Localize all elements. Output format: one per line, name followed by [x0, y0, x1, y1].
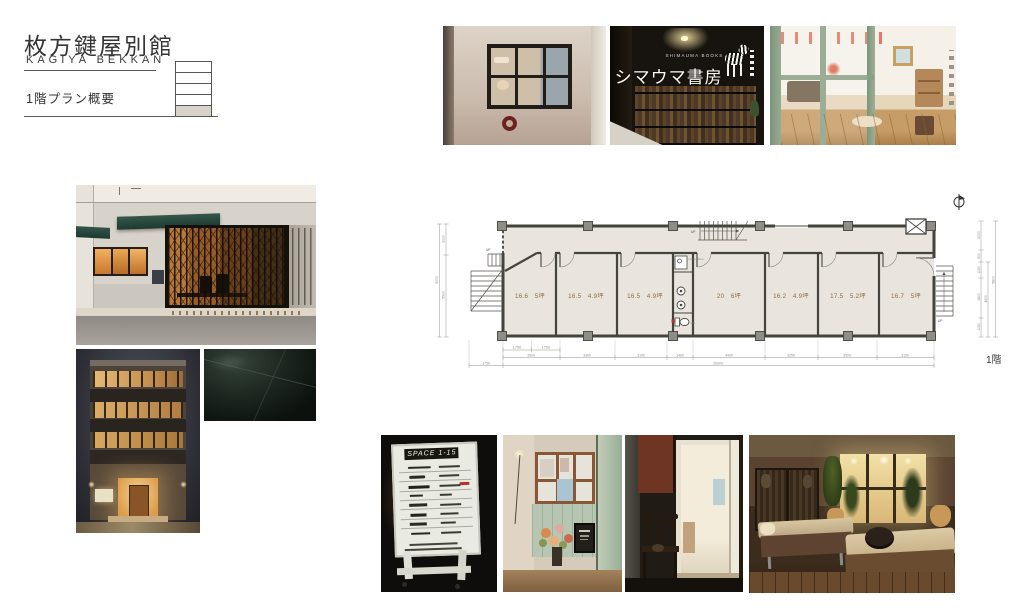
svg-text:1750: 1750: [513, 346, 521, 350]
right-door-section: [287, 225, 316, 308]
green-awning-left: [76, 226, 110, 239]
wall-plaque: [152, 270, 164, 284]
flower-bouquet: [539, 524, 579, 568]
small-framed-window: [893, 46, 913, 66]
svg-text:3250: 3250: [787, 353, 795, 357]
red-marker: [672, 320, 675, 323]
svg-text:3150: 3150: [901, 353, 909, 357]
floor-sheen: [208, 353, 248, 372]
svg-text:500: 500: [977, 253, 981, 259]
black-frame-window: [487, 44, 572, 109]
mini-kitchen-label: mini kitchen: [689, 257, 704, 261]
photo-facade-dusk: [76, 185, 316, 345]
wc-label: WC: [691, 321, 696, 325]
photo-interior-window: [443, 26, 606, 145]
svg-text:1150: 1150: [977, 266, 981, 273]
floor-indicator-diagram: [175, 61, 212, 117]
photo-gallery-interior: [770, 26, 956, 145]
lit-window-band: [93, 247, 148, 276]
photo-dark-floor: [204, 349, 316, 421]
tenant-rows: [398, 461, 473, 538]
fallen-leaves: [172, 311, 304, 315]
photo-hall-chair: [625, 435, 743, 592]
wood-framed-window: [535, 452, 595, 504]
svg-text:3300: 3300: [583, 353, 591, 357]
floor-cell-3: [176, 84, 211, 95]
window-band-4f: [93, 371, 182, 387]
window-band-2f: [93, 432, 182, 448]
svg-text:1150: 1150: [977, 323, 981, 330]
green-door: [596, 435, 622, 592]
plan-floor-fill: [503, 225, 934, 337]
page-subtitle: KAGIYA BEKKAN: [26, 54, 165, 66]
floor-cell-1-highlighted: [176, 106, 211, 116]
hanging-bag: [761, 474, 771, 488]
stair-right-exterior: [936, 266, 953, 316]
svg-text:4500: 4500: [984, 295, 988, 303]
zebra-tail-marks: [750, 50, 754, 76]
bookstore-sign-jp: シマウマ書房: [615, 63, 723, 88]
white-door-sliver: [591, 26, 606, 145]
floor-label: 1階: [986, 354, 1002, 366]
open-door-leaf: [729, 440, 740, 581]
room-label-7: 16.7 5坪: [891, 292, 921, 300]
wood-floor: [503, 570, 622, 592]
inner-window: [713, 479, 726, 504]
window-band-3f: [93, 402, 182, 418]
floor-planks: [781, 114, 956, 145]
red-tag: [459, 482, 469, 486]
lamp: [681, 36, 688, 41]
bookstore-sign-en: SHIMAUMA BOOKS: [665, 53, 723, 58]
face-cradle: [865, 527, 893, 550]
floor-cell-5: [176, 62, 211, 73]
room-label-1: 16.6 5坪: [515, 292, 545, 300]
svg-text:5800: 5800: [991, 276, 995, 284]
sign-header: SPACE 1-15: [404, 447, 458, 460]
wood-plank-floor: [749, 572, 955, 593]
room-label-5: 16.2 4.9坪: [773, 292, 809, 300]
room-label-3: 16.5 4.9坪: [627, 292, 663, 300]
green-frame-left: [770, 26, 781, 145]
svg-text:26000: 26000: [713, 361, 723, 365]
asphalt-road: [76, 316, 316, 345]
dims-bottom-labels: 1750 1750 3500 3300 3100 1480 4400 3250 …: [482, 346, 909, 366]
floor-cell-4: [176, 73, 211, 84]
svg-text:4400: 4400: [725, 353, 733, 357]
stair-left-exterior: [471, 254, 503, 311]
bookshelves: [635, 86, 757, 146]
photo-facade-night: [76, 349, 200, 533]
presentation-page: 枚方鍵屋別館 KAGIYA BEKKAN 1階プラン概要 SHIMAUMA BO…: [0, 0, 1032, 611]
room-labels: 16.6 5坪 16.5 4.9坪 16.5 4.9坪 20 6坪 16.2 4…: [515, 292, 921, 300]
dims-right-labels: 2000 500 1150 1800 1150 4500 5800: [977, 231, 996, 331]
bright-doorway: [676, 440, 740, 581]
red-brown-door: [638, 435, 676, 493]
svg-text:3500: 3500: [843, 353, 851, 357]
sign-footnote-line: [404, 547, 461, 551]
lit-entrance: [118, 478, 158, 518]
room-label-2: 16.5 4.9坪: [568, 292, 604, 300]
wood-shelf-unit: [915, 69, 943, 107]
caster-wheel-2: [455, 584, 460, 589]
dims-left-labels: 3000 5900 9000: [435, 235, 445, 299]
bulb-glow: [850, 457, 858, 465]
caster-wheel: [402, 582, 407, 587]
shelf-highlight: [494, 57, 509, 64]
zebra-logo: [724, 45, 750, 79]
sign-board: SPACE 1-15: [391, 441, 481, 557]
basket-right: [930, 505, 951, 527]
svg-text:3000: 3000: [441, 235, 445, 243]
title-rule: [24, 70, 156, 71]
floor-plan-drawing: UP UP UP mini kitchen WC: [435, 190, 1013, 390]
tenant-row: [401, 527, 473, 538]
chair-basket: [652, 544, 664, 552]
accordion-lattice: [168, 228, 284, 305]
sign-leg-right: [457, 549, 467, 579]
massage-bed-left: [758, 518, 855, 570]
up-label-right: UP: [938, 319, 942, 323]
wall-cards-column: [949, 50, 955, 105]
night-ground: [76, 522, 200, 533]
north-arrow-icon: [954, 194, 965, 210]
plant-silhouette: [843, 475, 860, 517]
svg-text:3500: 3500: [527, 353, 535, 357]
photo-entry-flowers: [503, 435, 622, 592]
plan-overview-label: 1階プラン概要: [26, 88, 115, 107]
photo-bookstore: SHIMAUMA BOOKS シマウマ書房: [610, 26, 764, 145]
side-wall: [76, 185, 94, 308]
svg-text:1800: 1800: [977, 293, 981, 301]
wooden-chair: [639, 514, 681, 580]
lit-sign: [95, 489, 114, 502]
svg-text:3100: 3100: [637, 353, 645, 357]
svg-text:1750: 1750: [542, 346, 550, 350]
flower-vase: [552, 547, 562, 565]
backlit-window: [840, 454, 927, 524]
up-label-left: UP: [486, 248, 490, 252]
room-label-4: 20 6坪: [717, 292, 741, 300]
photo-massage-room: [749, 435, 955, 593]
inner-stool: [683, 522, 694, 553]
svg-text:9000: 9000: [435, 276, 439, 284]
photo-signboard: SPACE 1-15: [381, 435, 497, 592]
up-label-top: UP: [691, 230, 695, 234]
svg-text:1750: 1750: [482, 361, 490, 365]
storefront-accordion-gate: [165, 225, 287, 308]
framed-sign: [574, 523, 594, 553]
tall-plant: [823, 456, 842, 507]
elevator-shaft: [906, 219, 926, 234]
floor-cell-2: [176, 95, 211, 106]
blue-pane: [557, 479, 573, 501]
svg-text:2000: 2000: [977, 231, 981, 239]
entrance-door: [129, 485, 148, 520]
antenna: [119, 187, 120, 195]
svg-text:5900: 5900: [441, 291, 445, 299]
dark-door-edge: [443, 26, 454, 145]
dark-floor-strip: [625, 578, 743, 592]
dims-bottom-lines: [469, 348, 934, 369]
room-label-6: 17.5 5.2坪: [830, 292, 866, 300]
parapet: [90, 360, 187, 366]
plant-leaf: [750, 100, 759, 116]
svg-text:1480: 1480: [676, 353, 684, 357]
